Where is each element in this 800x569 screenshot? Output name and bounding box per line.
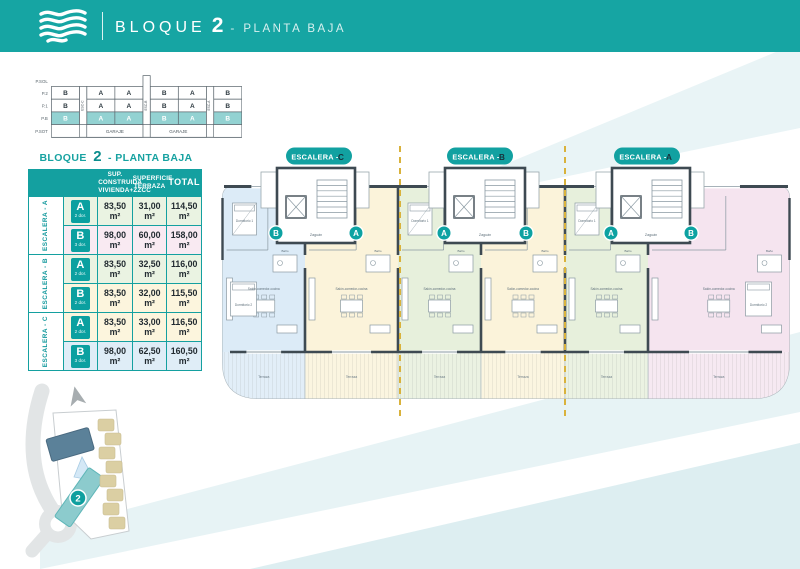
unit-letter: B [225, 103, 230, 110]
floor-label: P.SOT [35, 129, 48, 134]
apartment-badge-letter: A [353, 229, 359, 238]
room-label: Salón-comedor-cocina [591, 287, 623, 291]
header-divider [102, 12, 103, 40]
unit-badge-cell: A2 dor. [63, 313, 98, 342]
sup-construida-value: 83,50 m² [98, 313, 133, 342]
unit-bedrooms: 2 dor. [75, 329, 87, 335]
title-bloque: BLOQUE [115, 19, 206, 37]
escalera-pill-letter: C [338, 153, 344, 162]
unit-badge-cell: A2 dor. [63, 197, 98, 226]
terrace-label: Terraza [258, 375, 269, 379]
svg-text:Baño: Baño [624, 249, 631, 253]
terraza-value: 32,00 m² [132, 284, 167, 313]
header-bar: BLOQUE 2 - PLANTA BAJA [0, 0, 800, 52]
page-title: BLOQUE 2 - PLANTA BAJA [115, 14, 346, 38]
total-value: 116,00 m² [167, 255, 202, 284]
room-label: Salón-comedor-cocina [703, 287, 735, 291]
table-row: ESCALERA - AA2 dor.83,50 m²31,00 m²114,5… [29, 197, 202, 226]
escalera-pill-letter: B [499, 153, 505, 162]
title-dash: - [230, 21, 236, 35]
floor-plan: Dormitorio 2Dormitorio 1Salón-comedor-co… [215, 140, 800, 425]
total-value: 160,50 m² [167, 342, 202, 371]
unit-letter: A [98, 103, 103, 110]
room-label: Salón-comedor-cocina [424, 287, 456, 291]
zaguan-label: Zaguán [479, 233, 491, 237]
garage-label: GARAJE [106, 129, 124, 134]
unit-letter: B [76, 289, 84, 300]
terraza-value: 32,50 m² [132, 255, 167, 284]
stair-label: ESC-A [207, 100, 211, 111]
unit-bedrooms: 2 dor. [75, 213, 87, 219]
terrace-label: Terraza [517, 375, 528, 379]
total-value: 114,50 m² [167, 197, 202, 226]
house-shape [98, 419, 114, 431]
svg-text:Baño: Baño [457, 249, 464, 253]
sup-construida-value: 83,50 m² [98, 284, 133, 313]
unit-letter: B [225, 90, 230, 97]
apartment-badge-letter: A [441, 229, 447, 238]
table-title: BLOQUE 2 - PLANTA BAJA [28, 148, 204, 166]
table-title-bloque: BLOQUE [39, 152, 86, 164]
unit-letter: B [76, 347, 84, 358]
total-value: 115,50 m² [167, 284, 202, 313]
svg-text:Dormitorio 2: Dormitorio 2 [235, 303, 253, 307]
unit-badge: B3 dor. [71, 345, 90, 368]
house-shape [105, 433, 121, 445]
sup-construida-value: 83,50 m² [98, 197, 133, 226]
room-label: Salón-comedor-cocina [336, 287, 368, 291]
escalera-pill: ESCALERA - A [614, 148, 680, 165]
room-label: Salón-comedor-cocina [248, 287, 280, 291]
stair-core: ZaguánAB [429, 168, 539, 243]
unit-letter: A [127, 116, 132, 123]
terrace-label: Terraza [713, 375, 724, 379]
terrace-label: Terraza [601, 375, 612, 379]
col-header-total: TOTAL [167, 170, 202, 197]
unit-letter: B [76, 231, 84, 242]
unit-letter: B [225, 116, 230, 123]
terraza-value: 60,00 m² [132, 226, 167, 255]
apartment-badge-letter: B [523, 229, 529, 238]
svg-text:Baño: Baño [281, 249, 288, 253]
apartment-badge-letter: A [608, 229, 614, 238]
wave-logo-icon [38, 8, 88, 44]
unit-badge: A2 dor. [71, 258, 90, 281]
unit-letter: A [127, 103, 132, 110]
zaguan-label: Zaguán [645, 233, 657, 237]
house-shape [99, 447, 115, 459]
house-shape [106, 461, 122, 473]
unit-letter: A [76, 202, 84, 213]
sup-construida-value: 98,00 m² [98, 342, 133, 371]
terrace-label: Terraza [434, 375, 445, 379]
unit-badge: A2 dor. [71, 316, 90, 339]
garage-label: GARAJE [169, 129, 187, 134]
house-shape [107, 489, 123, 501]
escalera-pill-text: ESCALERA - [452, 153, 500, 162]
unit-letter: A [98, 90, 103, 97]
terraza-value: 62,50 m² [132, 342, 167, 371]
house-shape [109, 517, 125, 529]
svg-text:Baño: Baño [374, 249, 381, 253]
escalera-group-label: ESCALERA - A [29, 197, 64, 255]
room-label: Dormitorio 1 [236, 219, 254, 223]
unit-letter: A [190, 90, 195, 97]
table-title-planta: - PLANTA BAJA [108, 152, 193, 164]
stair-label: ESC-B [144, 101, 148, 111]
house-shape [103, 503, 119, 515]
col-header-sup-construida: SUP. CONSTRUIDA VIVIENDA+ZZCC [98, 170, 133, 197]
apartment-badge-letter: B [273, 229, 279, 238]
unit-letter: A [76, 318, 84, 329]
escalera-pill-letter: A [666, 153, 672, 162]
empty-header-cell [29, 170, 98, 197]
unit-badge: A2 dor. [71, 200, 90, 223]
room-label: Dormitorio 1 [578, 219, 596, 223]
escalera-label-text: ESCALERA - A [42, 200, 49, 251]
brochure-page: { "header": { "title_block": "BLOQUE", "… [0, 0, 800, 569]
unit-badge: B2 dor. [71, 287, 90, 310]
escalera-pill: ESCALERA - C [286, 148, 352, 165]
unit-letter: A [76, 260, 84, 271]
terraza-value: 31,00 m² [132, 197, 167, 226]
areas-table-block: BLOQUE 2 - PLANTA BAJA SUP. CONSTRUIDA V… [28, 148, 204, 371]
svg-text:Dormitorio 2: Dormitorio 2 [750, 303, 768, 307]
stair-core: ZaguánAB [596, 168, 704, 243]
floor-label: P.1 [42, 104, 49, 109]
apartment-badge-letter: B [688, 229, 694, 238]
unit-badge-cell: B3 dor. [63, 342, 98, 371]
total-value: 116,50 m² [167, 313, 202, 342]
stair-label: ESC-C [80, 100, 84, 111]
unit-badge-cell: A2 dor. [63, 255, 98, 284]
unit-letter: B [63, 90, 68, 97]
stair-column [143, 76, 150, 125]
floor-label: P.2 [42, 91, 49, 96]
table-row: ESCALERA - CA2 dor.83,50 m²33,00 m²116,5… [29, 313, 202, 342]
total-value: 158,00 m² [167, 226, 202, 255]
site-location-map: N 2 [12, 383, 202, 563]
zaguan-label: Zaguán [310, 233, 322, 237]
title-number: 2 [212, 14, 224, 38]
surfaces-table: SUP. CONSTRUIDA VIVIENDA+ZZCC SUPERFICIE… [28, 169, 202, 371]
unit-letter: A [127, 90, 132, 97]
terraza-value: 33,00 m² [132, 313, 167, 342]
floor-label: P.SOL [36, 79, 49, 84]
sup-construida-value: 83,50 m² [98, 255, 133, 284]
stair-core: ZaguánBA [261, 168, 369, 243]
unit-bedrooms: 3 dor. [75, 358, 87, 364]
svg-text:Baño: Baño [541, 249, 548, 253]
unit-bedrooms: 3 dor. [75, 242, 87, 248]
unit-badge-cell: B2 dor. [63, 284, 98, 313]
building-stack-diagram: P.SOLP.2P.1P.BP.SOTBAABABBAABABBAABABESC… [24, 72, 242, 140]
room-label: Dormitorio 1 [411, 219, 429, 223]
unit-badge-cell: B3 dor. [63, 226, 98, 255]
unit-bedrooms: 2 dor. [75, 271, 87, 277]
floor-label: P.B [41, 116, 48, 121]
unit-badge: B3 dor. [71, 229, 90, 252]
escalera-label-text: ESCALERA - C [42, 316, 49, 367]
escalera-pill: ESCALERA - B [447, 148, 513, 165]
escalera-pill-text: ESCALERA - [291, 153, 339, 162]
terrace-label: Terraza [346, 375, 357, 379]
unit-letter: B [63, 103, 68, 110]
room-label: Salón-comedor-cocina [507, 287, 539, 291]
unit-letter: B [162, 90, 167, 97]
sup-construida-value: 98,00 m² [98, 226, 133, 255]
unit-bedrooms: 2 dor. [75, 300, 87, 306]
svg-text:Baño: Baño [766, 249, 773, 253]
house-shape [100, 475, 116, 487]
table-row: ESCALERA - BA2 dor.83,50 m²32,50 m²116,0… [29, 255, 202, 284]
unit-letter: A [190, 103, 195, 110]
escalera-group-label: ESCALERA - C [29, 313, 64, 371]
table-title-number: 2 [93, 148, 101, 165]
escalera-group-label: ESCALERA - B [29, 255, 64, 313]
north-arrow-icon [67, 385, 87, 407]
block-2-badge-number: 2 [75, 494, 80, 505]
escalera-label-text: ESCALERA - B [42, 258, 49, 309]
unit-letter: B [162, 103, 167, 110]
escalera-pill-text: ESCALERA - [619, 153, 667, 162]
unit-letter: A [190, 116, 195, 123]
unit-letter: A [98, 116, 103, 123]
title-planta: PLANTA BAJA [243, 23, 346, 35]
unit-letter: B [162, 116, 167, 123]
unit-letter: B [63, 116, 68, 123]
